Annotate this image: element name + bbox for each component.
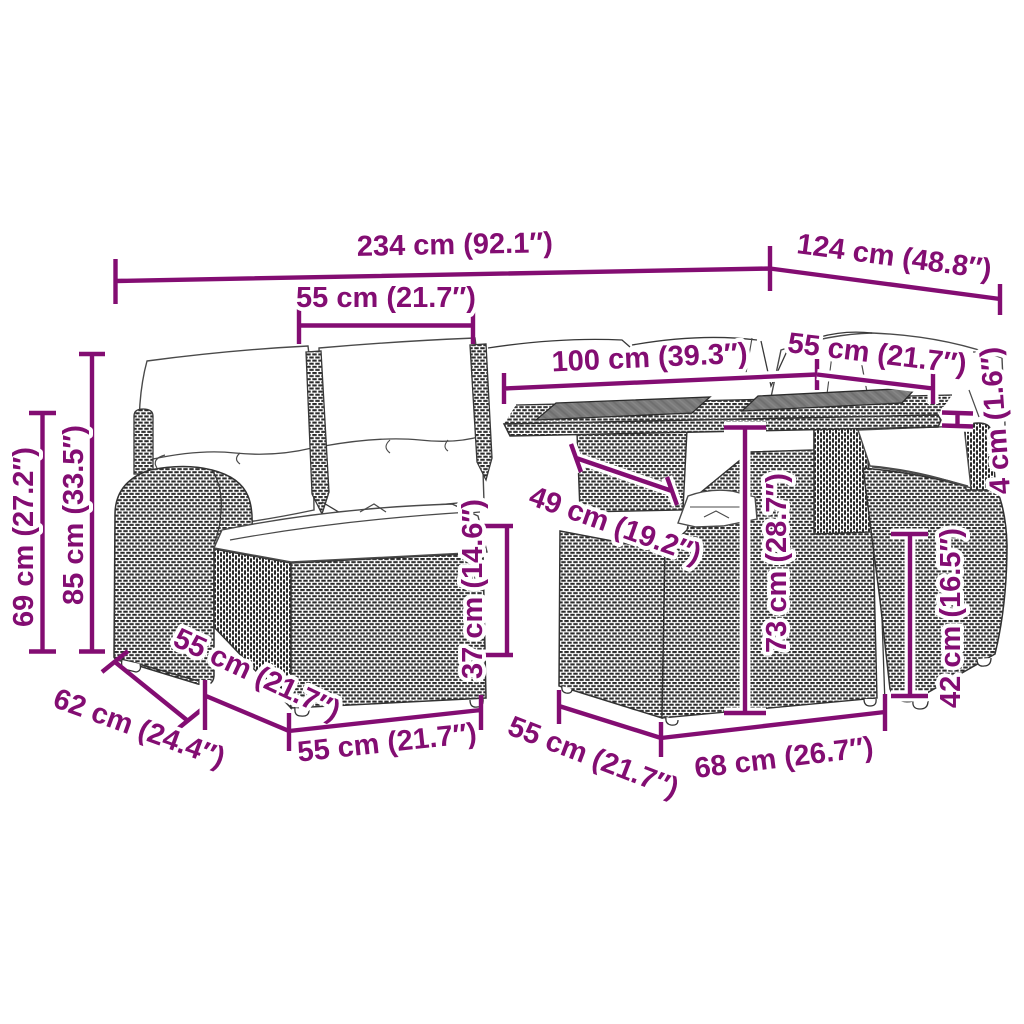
svg-text:42 cm (16.5″): 42 cm (16.5″)	[935, 528, 967, 708]
svg-text:55 cm (21.7″): 55 cm (21.7″)	[296, 282, 476, 314]
svg-text:37 cm (14.6″): 37 cm (14.6″)	[457, 499, 489, 679]
svg-text:69 cm (27.2″): 69 cm (27.2″)	[8, 447, 40, 627]
svg-text:85 cm (33.5″): 85 cm (33.5″)	[58, 425, 90, 605]
svg-text:73 cm (28.7″): 73 cm (28.7″)	[761, 473, 793, 653]
svg-text:234 cm (92.1″): 234 cm (92.1″)	[357, 227, 554, 263]
